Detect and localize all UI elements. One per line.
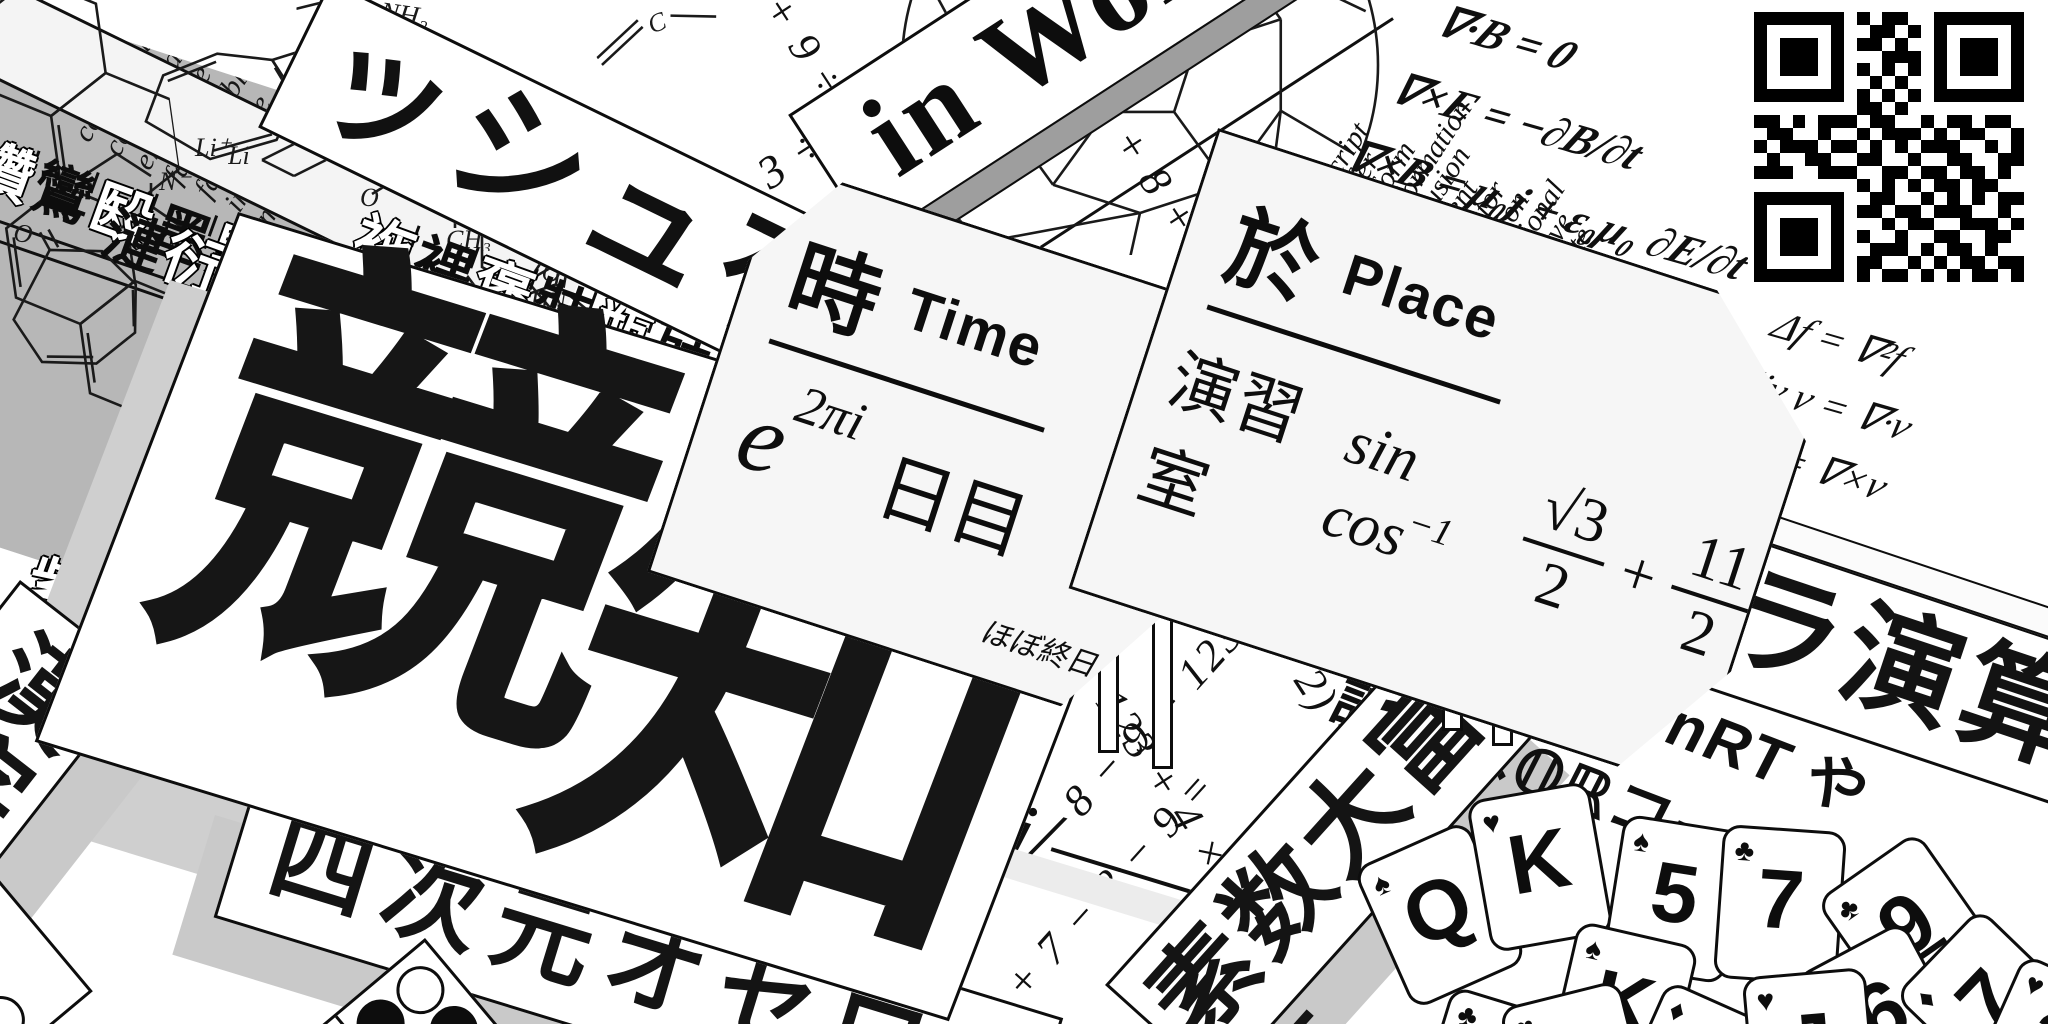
time-unit: 日目 xyxy=(867,445,1038,572)
chem-label: Li xyxy=(228,141,250,170)
qr-row xyxy=(1754,230,2036,243)
time-english: Time xyxy=(897,275,1052,381)
chem-label: N⁻ xyxy=(158,167,192,196)
chem-label: O xyxy=(12,221,35,249)
qr-row xyxy=(1754,243,2036,256)
time-note: ほぼ終日 xyxy=(974,609,1111,685)
fraction-denominator: 2 xyxy=(1673,596,1724,670)
fraction-numerator: √3 xyxy=(1523,470,1627,567)
qr-row xyxy=(1754,51,2036,64)
chem-label: C xyxy=(643,6,671,40)
qr-row xyxy=(1754,166,2036,179)
place-english: Place xyxy=(1335,241,1509,353)
qr-row xyxy=(1754,256,2036,269)
qr-row xyxy=(1754,269,2036,282)
qr-row xyxy=(1754,179,2036,192)
time-kanji: 時 xyxy=(776,231,892,354)
qr-row xyxy=(1754,115,2036,128)
qr-row xyxy=(1754,12,2036,25)
place-kanji: 於 xyxy=(1214,197,1330,320)
qr-row xyxy=(1754,218,2036,231)
card-suit-icon: ♥ xyxy=(1513,1011,1539,1024)
fraction-sqrt3-2: √3 2 xyxy=(1502,470,1627,632)
qr-row xyxy=(1754,38,2036,51)
euler-e: e xyxy=(725,378,802,497)
carbon-fragment: C xyxy=(582,0,742,95)
euler-exponent: 2πi xyxy=(789,374,873,452)
qr-row xyxy=(1754,205,2036,218)
qr-row xyxy=(1754,140,2036,153)
playing-card-J♥: ♥J xyxy=(1742,967,1879,1024)
qr-row xyxy=(1754,89,2036,102)
place-room: 演習室 xyxy=(1128,325,1350,566)
chem-label: Li⁺ xyxy=(194,133,233,162)
qr-row xyxy=(1754,153,2036,166)
poster-stage: Li⁺ N⁻ Li O H₃C N N CH₃ O HN NH₂ O OH O xyxy=(0,0,2048,1024)
qr-code xyxy=(1748,6,2042,300)
plus-sign: + xyxy=(1611,536,1666,614)
qr-row xyxy=(1754,192,2036,205)
qr-row xyxy=(1754,102,2036,115)
qr-row xyxy=(1754,63,2036,76)
qr-row xyxy=(1754,128,2036,141)
qr-row xyxy=(1754,76,2036,89)
qr-row xyxy=(1754,25,2036,38)
fraction-denominator: 2 xyxy=(1527,549,1578,623)
